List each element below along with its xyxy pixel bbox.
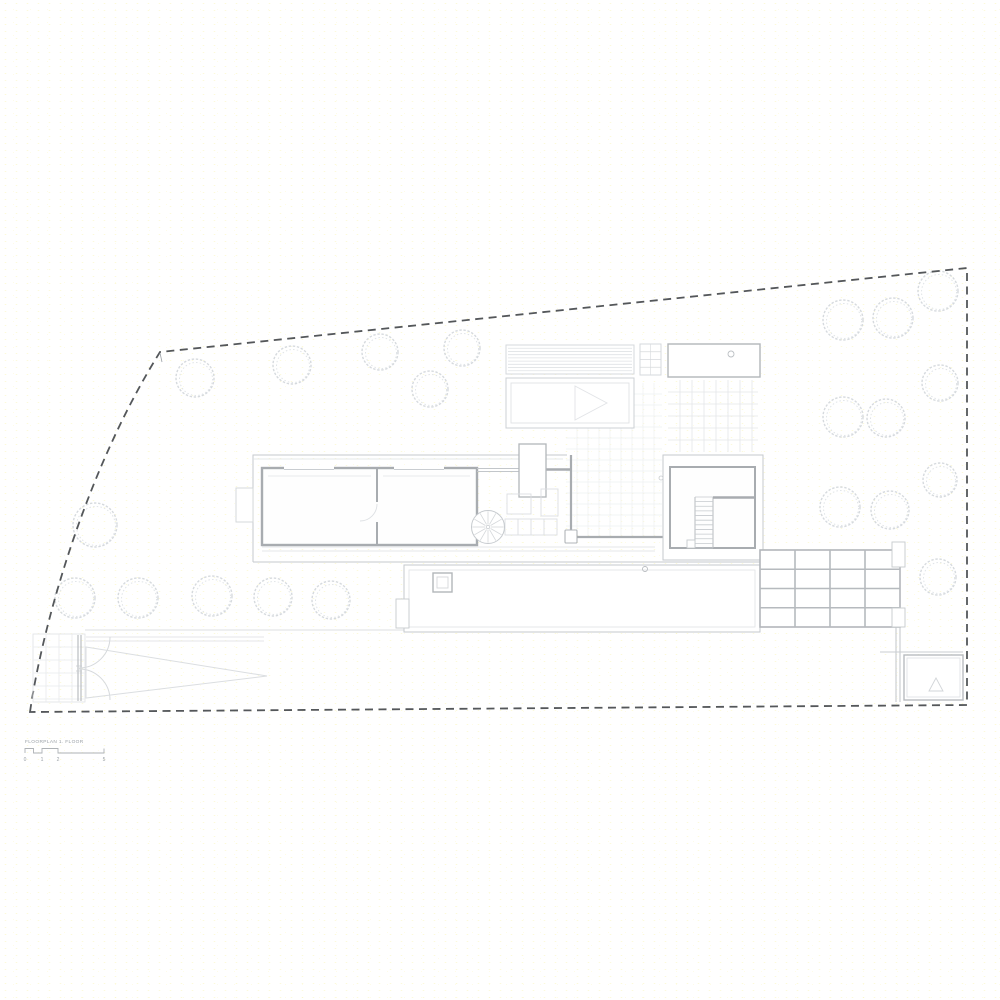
- window-opening-2: [394, 465, 444, 471]
- tree: [867, 399, 905, 437]
- wall-post: [565, 530, 577, 543]
- spa-basin: [668, 344, 760, 377]
- floorplan-sheet: FLOORPLAN 1. FLOOR 0 1 2 5: [0, 0, 1000, 1000]
- boundary-dashed-line: [30, 268, 967, 712]
- tree: [922, 365, 958, 401]
- right-wing: [659, 455, 763, 560]
- tree: [444, 330, 480, 366]
- scale-label-2: 2: [57, 757, 60, 763]
- tree: [362, 334, 398, 370]
- floorplan-drawing: FLOORPLAN 1. FLOOR 0 1 2 5: [0, 0, 1000, 1000]
- counter-dividers: [518, 519, 544, 535]
- tree: [923, 463, 957, 497]
- lower-terrace: [396, 565, 760, 632]
- terrace-side-annex: [396, 599, 409, 628]
- tree: [920, 559, 956, 595]
- garden-shed-box: [904, 655, 963, 700]
- scale-label-1: 1: [41, 757, 44, 763]
- pergola-tab-top: [892, 542, 905, 567]
- patio-tile-grid: [668, 380, 758, 452]
- tree: [312, 581, 350, 619]
- skylight-box: [433, 573, 452, 592]
- tree: [918, 271, 958, 311]
- tree: [73, 503, 117, 547]
- tree: [192, 576, 232, 616]
- pool-deck: [506, 345, 634, 374]
- gate-swing-arcs: [79, 637, 110, 700]
- bedroom-block: [262, 468, 477, 545]
- door-hinge-circle: [659, 476, 663, 480]
- stair-base-box: [687, 540, 695, 548]
- tree: [254, 578, 292, 616]
- scale-label-5: 5: [103, 757, 106, 763]
- tree: [820, 487, 860, 527]
- east-garden-wall: [896, 627, 900, 702]
- pergola-beam-grid: [760, 550, 900, 627]
- boundary-corner-tick: [160, 353, 162, 362]
- tree: [118, 578, 158, 618]
- drawing-title: FLOORPLAN 1. FLOOR: [25, 739, 84, 745]
- driveway-area: [33, 630, 404, 702]
- scale-bar: [25, 749, 104, 754]
- tree: [873, 298, 913, 338]
- spiral-stair: [472, 511, 505, 544]
- title-block: FLOORPLAN 1. FLOOR 0 1 2 5: [24, 739, 106, 763]
- terrace-outline: [404, 565, 760, 632]
- pergola: [760, 542, 905, 627]
- east-garden: [880, 627, 963, 702]
- tree: [273, 346, 311, 384]
- tree: [176, 359, 214, 397]
- drive-tile-grid: [33, 634, 85, 702]
- main-house: [236, 444, 763, 562]
- scale-label-0: 0: [24, 757, 27, 763]
- tree: [871, 491, 909, 529]
- tree: [823, 300, 863, 340]
- ramp-triangle-marker: [86, 647, 267, 698]
- tree: [55, 578, 95, 618]
- courtyard-north-glazing: [477, 469, 519, 472]
- pool: [506, 378, 634, 428]
- pergola-tab-bottom: [892, 608, 905, 627]
- property-boundary: [30, 268, 967, 712]
- terrace-strip-lines: [262, 547, 655, 551]
- tree: [412, 371, 448, 407]
- drive-edge-lines: [86, 637, 264, 641]
- tree: [823, 397, 863, 437]
- west-annex-box: [236, 488, 253, 522]
- window-opening-1: [284, 465, 334, 471]
